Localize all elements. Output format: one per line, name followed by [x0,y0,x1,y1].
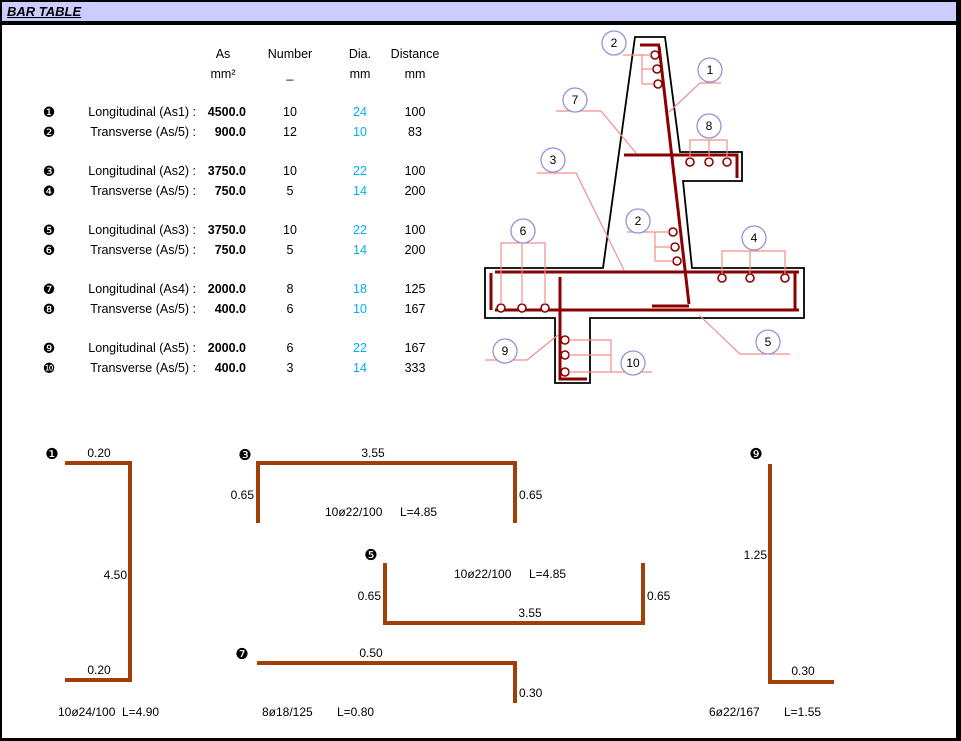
shape-length: L=0.80 [337,705,374,719]
svg-text:9: 9 [502,344,509,358]
callout-bubbles: 2 1 7 8 3 2 6 [493,31,780,375]
number-value: 12 [250,122,330,142]
shape-bullet: ❶ [45,446,58,463]
distance-value: 200 [390,240,440,260]
as-value: 2000.0 [196,338,250,358]
svg-text:1: 1 [707,63,714,77]
dim-label: 3.55 [361,446,385,460]
row-label: Transverse (As/5) : [68,358,196,378]
number-value: 6 [250,299,330,319]
number-value: 8 [250,279,330,299]
distance-value: 167 [390,299,440,319]
shape-bullet: ❾ [749,446,762,463]
table-row: ❷ Transverse (As/5) : 900.0 12 10 83 [30,122,442,142]
row-bullet: ❷ [30,122,68,142]
row-bullet: ❽ [30,299,68,319]
dia-value: 10 [330,299,390,319]
as-value: 3750.0 [196,220,250,240]
page-title: BAR TABLE [2,2,81,21]
dim-label: 1.25 [744,548,768,562]
dim-label: 0.65 [358,589,382,603]
svg-text:5: 5 [765,335,772,349]
distance-value: 100 [390,102,440,122]
callout-3: 3 [541,148,565,172]
bar-shape-1: ❶ 0.20 4.50 0.20 10ø24/100 L=4.90 [45,446,159,719]
table-row: ❽ Transverse (As/5) : 400.0 6 10 167 [30,299,442,319]
row-label: Transverse (As/5) : [68,181,196,201]
wall-section-drawing: 2 1 7 8 3 2 6 [480,20,961,402]
row-bullet: ❶ [30,102,68,122]
callout-1: 1 [698,58,722,82]
row-bullet: ❻ [30,240,68,260]
number-value: 3 [250,358,330,378]
dim-label: 0.30 [519,686,543,700]
svg-text:7: 7 [572,93,579,107]
row-label: Transverse (As/5) : [68,240,196,260]
dim-label: 4.50 [104,568,128,582]
svg-text:4: 4 [751,231,758,245]
table-row: ❸ Longitudinal (As2) : 3750.0 10 22 100 [30,161,442,181]
as-value: 3750.0 [196,161,250,181]
dia-value: 24 [330,102,390,122]
as-value: 750.0 [196,240,250,260]
sheet: BAR TABLE As Number Dia. Distance mm² _ … [0,0,961,741]
distance-value: 167 [390,338,440,358]
shape-spec: 10ø22/100 [325,505,383,519]
dia-value: 14 [330,181,390,201]
number-value: 10 [250,102,330,122]
callout-7: 7 [563,88,587,112]
number-value: 10 [250,161,330,181]
number-value: 6 [250,338,330,358]
dia-value: 14 [330,240,390,260]
shape-spec: 8ø18/125 [262,705,313,719]
dim-label: 0.65 [647,589,671,603]
dia-value: 14 [330,358,390,378]
callout-8: 8 [697,114,721,138]
shape-bullet: ❸ [238,447,251,464]
dim-label: 0.30 [791,664,815,678]
bar-shapes: ❶ 0.20 4.50 0.20 10ø24/100 L=4.90 ❸ 3.55… [2,437,961,737]
number-value: 5 [250,240,330,260]
row-bullet: ❸ [30,161,68,181]
as-value: 750.0 [196,181,250,201]
row-bullet: ❾ [30,338,68,358]
dim-label: 3.55 [518,606,542,620]
row-bullet: ❼ [30,279,68,299]
col-header-distance: Distance [390,44,440,64]
row-bullet: ❿ [30,358,68,378]
shape-bullet: ❺ [364,547,377,564]
bar-shape-7: ❼ 0.50 0.30 8ø18/125 L=0.80 [235,646,542,719]
row-label: Transverse (As/5) : [68,122,196,142]
dim-label: 0.50 [359,646,383,660]
dim-label: 0.20 [87,663,111,677]
distance-value: 100 [390,161,440,181]
svg-text:10: 10 [626,356,640,370]
shape-spec: 10ø22/100 [454,567,512,581]
row-label: Longitudinal (As3) : [68,220,196,240]
as-value: 4500.0 [196,102,250,122]
distance-value: 83 [390,122,440,142]
dim-label: 0.20 [87,446,111,460]
table-row: ❻ Transverse (As/5) : 750.0 5 14 200 [30,240,442,260]
col-unit-as: mm² [196,64,250,84]
col-header-number: Number [250,44,330,64]
svg-text:8: 8 [706,119,713,133]
number-value: 10 [250,220,330,240]
callout-5: 5 [756,330,780,354]
col-header-dia: Dia. [330,44,390,64]
title-bar: BAR TABLE [2,2,956,21]
table-row: ❺ Longitudinal (As3) : 3750.0 10 22 100 [30,220,442,240]
number-value: 5 [250,181,330,201]
wall-outline [485,37,804,383]
table-row: ❼ Longitudinal (As4) : 2000.0 8 18 125 [30,279,442,299]
table-body: ❶ Longitudinal (As1) : 4500.0 10 24 100 … [30,102,442,378]
table-row: ❶ Longitudinal (As1) : 4500.0 10 24 100 [30,102,442,122]
callout-9: 9 [493,339,517,363]
callout-4: 4 [742,226,766,250]
shape-spec: 10ø24/100 [58,705,116,719]
svg-text:2: 2 [611,36,618,50]
dia-value: 22 [330,161,390,181]
row-label: Longitudinal (As1) : [68,102,196,122]
row-label: Longitudinal (As4) : [68,279,196,299]
bar-shape-5: ❺ 10ø22/100 L=4.85 0.65 0.65 3.55 [358,547,671,623]
shape-spec: 6ø22/167 [709,705,760,719]
dim-label: 0.65 [231,488,255,502]
shape-bullet: ❼ [235,646,248,663]
callout-6: 6 [511,219,535,243]
bar-shape-9: ❾ 1.25 0.30 6ø22/167 L=1.55 [709,446,834,719]
shape-length: L=1.55 [784,705,821,719]
col-header-as: As [196,44,250,64]
svg-text:6: 6 [520,224,527,238]
col-unit-dia: mm [330,64,390,84]
as-value: 900.0 [196,122,250,142]
row-bullet: ❺ [30,220,68,240]
distance-value: 200 [390,181,440,201]
bar-shape-3: ❸ 3.55 0.65 0.65 10ø22/100 L=4.85 [231,446,543,523]
as-value: 2000.0 [196,279,250,299]
row-label: Transverse (As/5) : [68,299,196,319]
distance-value: 100 [390,220,440,240]
shape-length: L=4.85 [400,505,437,519]
dim-label: 0.65 [519,488,543,502]
distance-value: 125 [390,279,440,299]
callout-10: 10 [621,351,645,375]
dia-value: 10 [330,122,390,142]
svg-text:3: 3 [550,153,557,167]
table-row: ❾ Longitudinal (As5) : 2000.0 6 22 167 [30,338,442,358]
callout-2-mid: 2 [626,209,650,233]
table-row: ❿ Transverse (As/5) : 400.0 3 14 333 [30,358,442,378]
dia-value: 22 [330,220,390,240]
distance-value: 333 [390,358,440,378]
shape-length: L=4.85 [529,567,566,581]
svg-text:2: 2 [635,214,642,228]
dia-value: 22 [330,338,390,358]
shape-length: L=4.90 [122,705,159,719]
row-label: Longitudinal (As5) : [68,338,196,358]
as-value: 400.0 [196,299,250,319]
bar-table: As Number Dia. Distance mm² _ mm mm ❶ Lo… [30,44,442,397]
table-header: As Number Dia. Distance mm² _ mm mm [30,44,442,84]
col-unit-number: _ [250,64,330,84]
table-row: ❹ Transverse (As/5) : 750.0 5 14 200 [30,181,442,201]
col-unit-distance: mm [390,64,440,84]
callout-2-top: 2 [602,31,626,55]
row-bullet: ❹ [30,181,68,201]
dia-value: 18 [330,279,390,299]
as-value: 400.0 [196,358,250,378]
row-label: Longitudinal (As2) : [68,161,196,181]
